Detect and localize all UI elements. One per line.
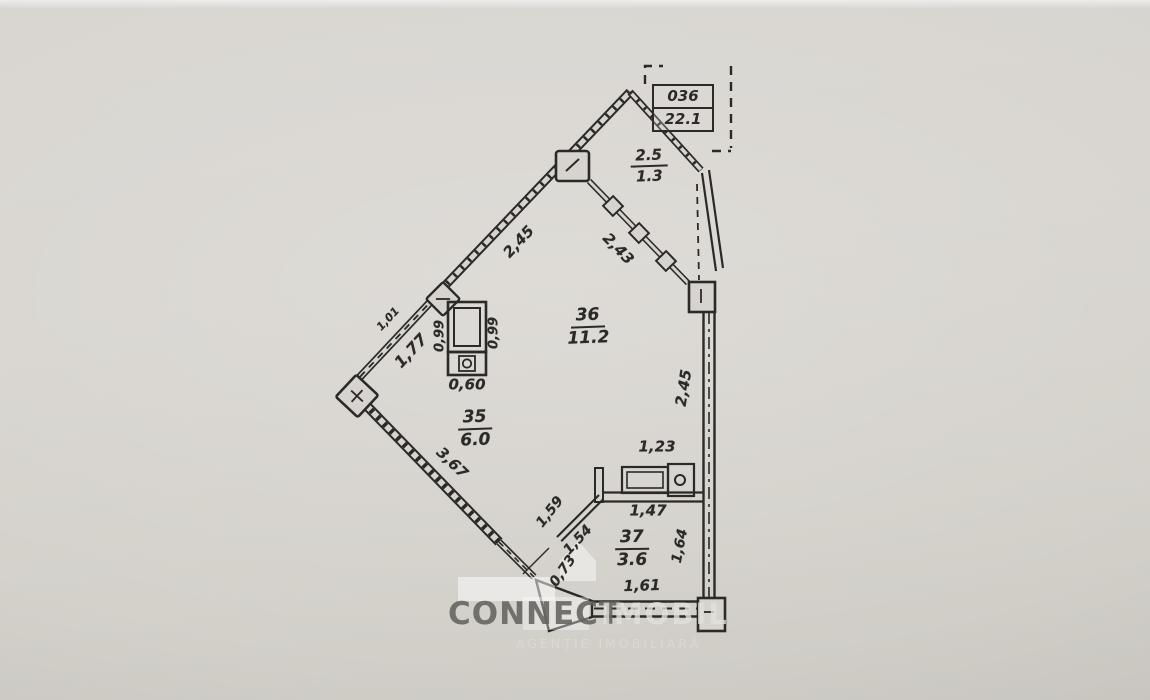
floor-plan-photo: CONNECT IMOBIL AGENȚIE IMOBILIARĂ 036 22… (0, 0, 1150, 700)
dim-bath-top: 1,23 (638, 440, 675, 455)
vent-duct-fixture (448, 302, 486, 375)
loggia-outer-window (697, 170, 723, 280)
loggia-number: 2.5 (630, 147, 667, 167)
wall-bottom-left-window (499, 542, 534, 577)
column-top (556, 151, 589, 181)
room-37-number: 37 (615, 529, 649, 551)
room-35-label: 35 6.0 (457, 408, 492, 449)
watermark-brand-light: IMOBIL (601, 600, 729, 629)
room-35-area: 6.0 (460, 429, 491, 449)
dim-vent-left: 0,99 (434, 320, 447, 352)
room-36-label: 36 11.2 (566, 306, 609, 347)
column-right-upper (689, 282, 715, 312)
loggia-label: 2.5 1.3 (630, 147, 668, 184)
loggia-area: 1.3 (636, 167, 663, 185)
unit-number: 036 (652, 84, 714, 109)
watermark-tagline: AGENȚIE IMOBILIARĂ (516, 638, 701, 651)
unit-info-box: 036 22.1 (652, 84, 714, 132)
room-37-label: 37 3.6 (615, 529, 649, 570)
washbasin-fixture (622, 467, 668, 493)
toilet-fixture (668, 464, 694, 496)
room-36-number: 36 (570, 306, 604, 328)
dim-vent-right: 0,99 (488, 317, 501, 349)
dim-bottom-wall: 1,61 (623, 578, 661, 594)
dim-bath-inner-width: 1,47 (629, 504, 666, 519)
floor-plan-drawing (0, 0, 1150, 700)
loggia-partition-wall (589, 181, 688, 283)
dim-vent-bottom: 0,60 (448, 378, 485, 393)
unit-total-area: 22.1 (652, 107, 714, 132)
watermark-brand-dark: CONNECT (448, 599, 621, 630)
room-36-area: 11.2 (567, 327, 610, 347)
wall-right (704, 310, 715, 599)
room-35-number: 35 (457, 408, 491, 430)
room-37-area: 3.6 (617, 550, 647, 570)
